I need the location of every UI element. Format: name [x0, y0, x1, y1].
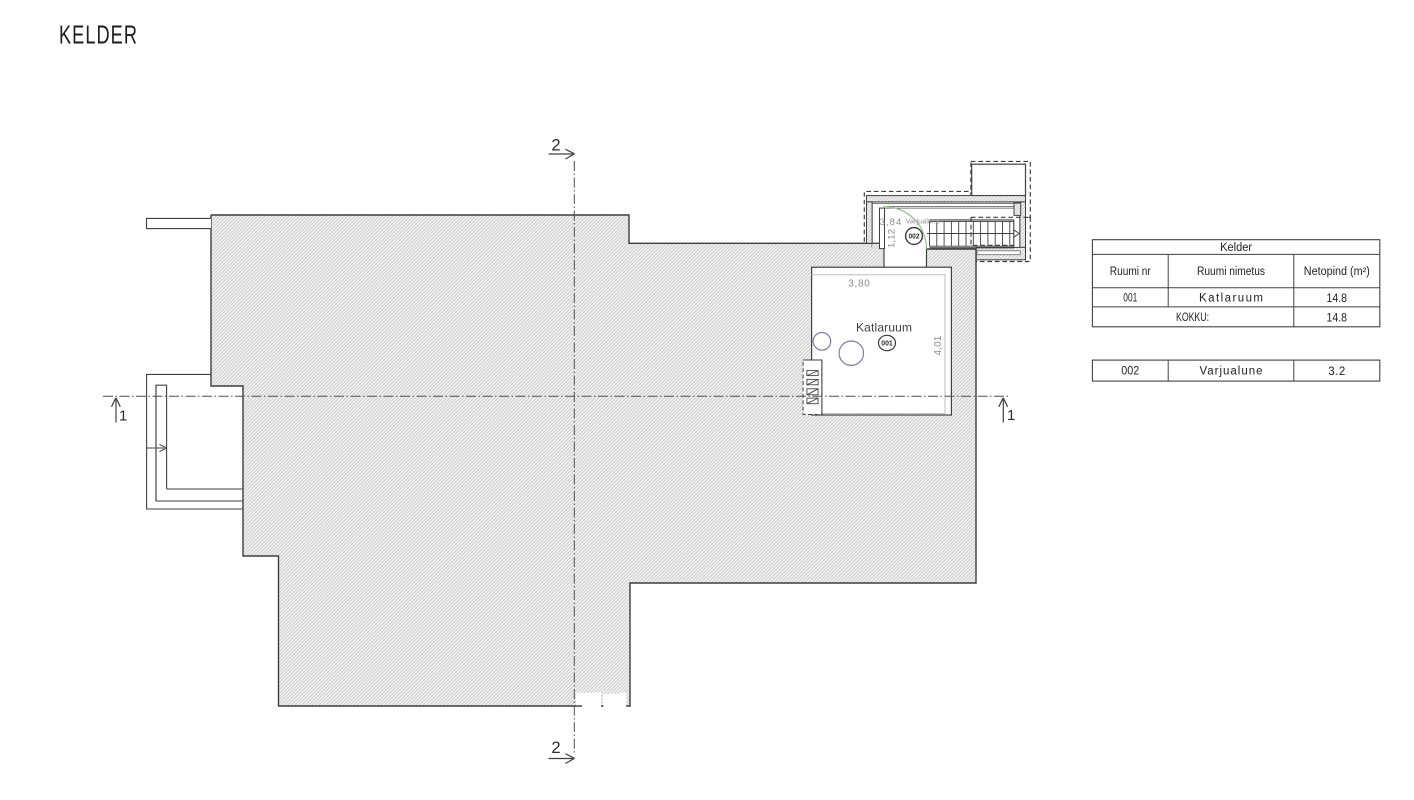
- svg-text:KOKKU:: KOKKU:: [1176, 312, 1209, 324]
- svg-text:002: 002: [1121, 366, 1139, 378]
- svg-text:3,84: 3,84: [880, 217, 902, 228]
- svg-text:2: 2: [551, 739, 560, 757]
- svg-text:4,01: 4,01: [933, 335, 944, 355]
- svg-text:14.8: 14.8: [1327, 293, 1348, 305]
- svg-text:Katlaruum: Katlaruum: [856, 321, 912, 335]
- svg-text:3.2: 3.2: [1328, 366, 1345, 378]
- svg-text:001: 001: [1123, 293, 1137, 305]
- svg-text:Netopind (m²): Netopind (m²): [1304, 266, 1370, 278]
- svg-text:1: 1: [1007, 407, 1015, 424]
- svg-text:Varjualune: Varjualune: [906, 219, 940, 226]
- svg-text:Kelder: Kelder: [1220, 242, 1252, 254]
- svg-text:Ruumi nimetus: Ruumi nimetus: [1197, 266, 1265, 278]
- svg-text:1,12: 1,12: [886, 229, 897, 248]
- svg-text:Varjualune: Varjualune: [1200, 366, 1263, 378]
- svg-text:KELDER: KELDER: [59, 20, 138, 50]
- svg-text:002: 002: [909, 234, 920, 241]
- svg-text:1: 1: [119, 408, 127, 425]
- svg-text:001: 001: [881, 339, 893, 348]
- svg-text:Ruumi nr: Ruumi nr: [1110, 266, 1151, 278]
- svg-text:2: 2: [551, 137, 560, 155]
- svg-text:3,80: 3,80: [848, 278, 870, 289]
- svg-text:14.8: 14.8: [1327, 312, 1348, 324]
